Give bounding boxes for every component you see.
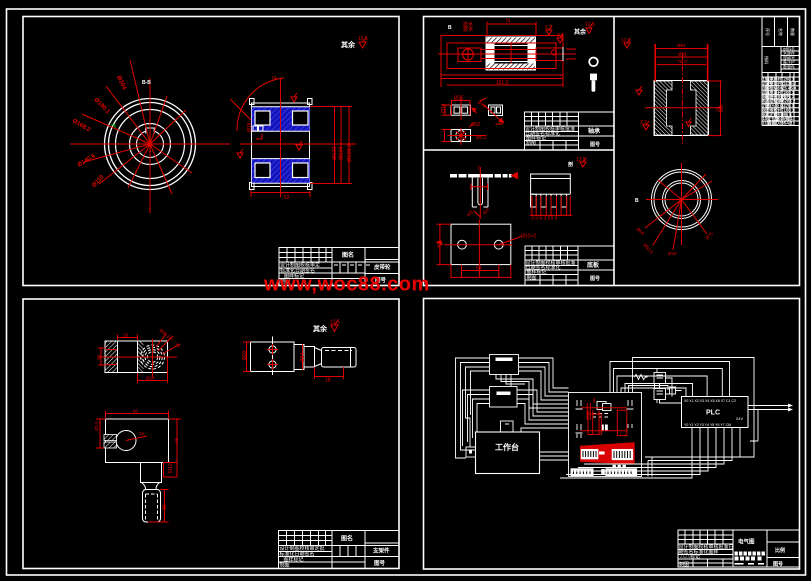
svg-text:制图: 制图 — [679, 561, 689, 568]
svg-text:底板: 底板 — [587, 261, 600, 269]
svg-text:Ø52: Ø52 — [471, 122, 481, 128]
svg-text:52: 52 — [284, 195, 290, 201]
svg-text:60: 60 — [133, 409, 139, 414]
svg-text:B: B — [635, 198, 639, 204]
svg-text:△△标记: △△标记 — [680, 553, 700, 560]
svg-text:剖: 剖 — [568, 161, 573, 168]
svg-text:Ø40: Ø40 — [668, 251, 677, 256]
svg-text:电气图: 电气图 — [738, 538, 755, 546]
svg-text:图号: 图号 — [773, 561, 783, 568]
svg-text:Ø20: Ø20 — [242, 350, 248, 360]
svg-text:数量件: 数量件 — [783, 64, 795, 70]
svg-text:3.2: 3.2 — [545, 25, 552, 31]
svg-text:Ø159: Ø159 — [339, 147, 345, 160]
svg-text:12.5: 12.5 — [330, 320, 340, 326]
svg-text:图名: 图名 — [342, 251, 354, 259]
svg-text:皮带轮: 皮带轮 — [374, 263, 391, 271]
svg-text:24V: 24V — [736, 416, 743, 421]
svg-text:X0 X1 X2 X3 X4 X5 X6 X7 C1 C2: X0 X1 X2 X3 X4 X5 X6 X7 C1 C2 — [684, 399, 736, 403]
svg-text:Ø10×2: Ø10×2 — [521, 234, 536, 240]
svg-text:图名: 图名 — [341, 535, 353, 543]
svg-text:3.2: 3.2 — [557, 33, 564, 39]
svg-text:要求: 要求 — [463, 26, 473, 33]
svg-text:Ø25: Ø25 — [454, 96, 464, 102]
svg-text:12.5: 12.5 — [576, 157, 586, 163]
svg-text:75H7: 75H7 — [677, 59, 688, 64]
svg-text:54: 54 — [476, 266, 482, 272]
svg-text:7: 7 — [477, 167, 480, 173]
svg-text:序号: 序号 — [765, 28, 771, 36]
svg-text:Ø18: Ø18 — [247, 122, 253, 132]
svg-text:制图: 制图 — [526, 140, 536, 147]
svg-text:18: 18 — [325, 378, 331, 384]
svg-text:PLC: PLC — [706, 410, 720, 417]
svg-text:名称: 名称 — [778, 28, 784, 36]
svg-text:其余: 其余 — [574, 28, 587, 36]
svg-text:支架件: 支架件 — [372, 547, 390, 555]
svg-text:Ø168.2: Ø168.2 — [347, 144, 353, 162]
svg-text:www,woc88.com: www,woc88.com — [263, 274, 430, 296]
svg-text:B-B: B-B — [142, 80, 151, 86]
svg-text:图号: 图号 — [590, 141, 600, 148]
svg-text:40: 40 — [437, 242, 443, 248]
svg-text:图号: 图号 — [590, 275, 600, 282]
svg-text:28: 28 — [123, 333, 129, 338]
svg-text:M8: M8 — [719, 105, 725, 112]
svg-text:16: 16 — [139, 431, 145, 436]
svg-text:Ø120: Ø120 — [332, 147, 338, 160]
svg-text:图号: 图号 — [374, 559, 386, 567]
svg-text:11端盖Q235A 1: 11端盖Q235A 1 — [763, 120, 794, 127]
svg-text:Ø2.5: Ø2.5 — [94, 421, 99, 431]
svg-text:24: 24 — [96, 354, 101, 360]
svg-text:Ø5.2: Ø5.2 — [476, 135, 487, 141]
svg-text:3 3 5 3 25 3: 3 3 5 3 25 3 — [531, 216, 558, 222]
svg-text:其余: 其余 — [313, 324, 328, 333]
svg-text:Ø24: Ø24 — [146, 376, 155, 381]
svg-text:Ø85: Ø85 — [678, 52, 687, 57]
svg-text:轴承: 轴承 — [588, 127, 600, 135]
svg-text:12.5: 12.5 — [585, 22, 595, 28]
svg-text:74: 74 — [271, 76, 277, 82]
svg-text:数量: 数量 — [790, 28, 796, 36]
svg-text:Ø14: Ø14 — [441, 103, 447, 113]
svg-text:比例: 比例 — [775, 547, 785, 554]
svg-text:Y0 Y1 Y2 Y3 Y4 Y5 Y6 Y7 CM: Y0 Y1 Y2 Y3 Y4 Y5 Y6 Y7 CM — [684, 423, 731, 427]
svg-text:45: 45 — [174, 437, 179, 443]
svg-text:151.2: 151.2 — [496, 80, 509, 86]
svg-text:B: B — [448, 25, 452, 31]
svg-text:3.2: 3.2 — [640, 120, 647, 126]
svg-text:12.5: 12.5 — [358, 36, 368, 42]
svg-text:制图: 制图 — [280, 562, 290, 569]
svg-text:其余: 其余 — [341, 40, 356, 49]
svg-text:M12: M12 — [168, 463, 174, 473]
svg-text:74: 74 — [505, 19, 511, 25]
svg-text:12.5: 12.5 — [621, 38, 631, 44]
svg-text:工作台: 工作台 — [495, 442, 519, 452]
svg-text:栈料: 栈料 — [764, 56, 770, 64]
svg-text:制图: 制图 — [527, 274, 537, 281]
svg-text:30: 30 — [162, 504, 168, 510]
svg-text:Ø14: Ø14 — [300, 352, 306, 362]
svg-text:Ø94: Ø94 — [677, 43, 686, 48]
